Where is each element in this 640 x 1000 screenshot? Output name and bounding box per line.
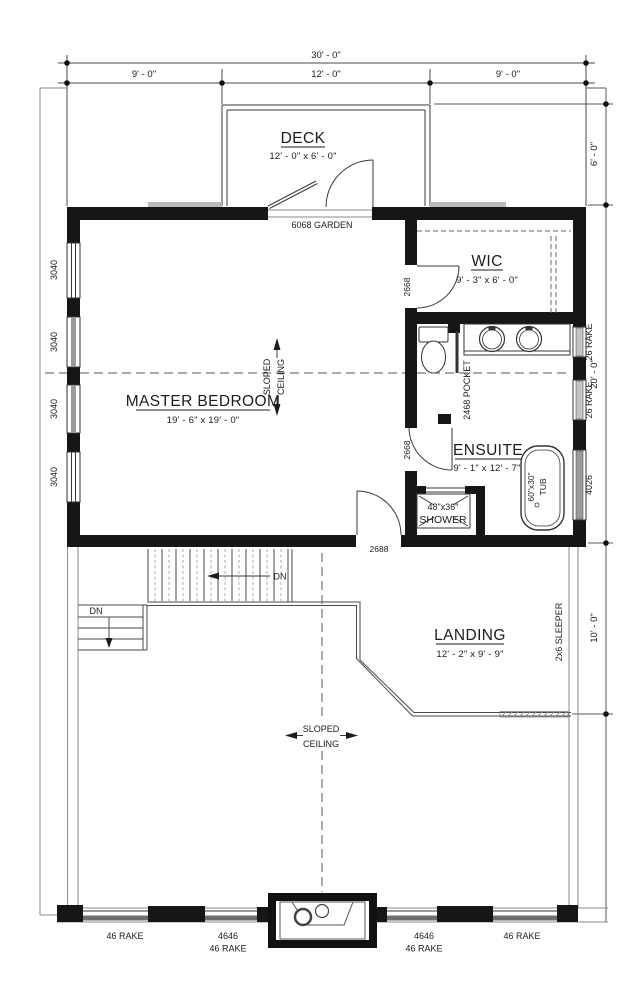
- window-label-3040-3: 3040: [49, 399, 59, 419]
- stairs-dn-label-upper: DN: [274, 572, 287, 582]
- window-label-26rake-1: 26 RAKE: [584, 323, 594, 360]
- landing-dims: 12' - 2" x 9' - 9": [436, 649, 503, 660]
- dim-top-mid: 12' - 0": [311, 69, 340, 80]
- tub-size-label: 60"x30": [526, 472, 536, 501]
- bedroom-door: [357, 491, 401, 535]
- window-label-46rake-right: 46 RAKE: [405, 944, 442, 954]
- garden-door: [268, 160, 373, 217]
- wic-dims: 9' - 3" x 6' - 0": [456, 275, 518, 286]
- deck-label: DECK: [281, 130, 326, 147]
- sleeper-hatch: [500, 712, 568, 718]
- garden-door-label: 6068 GARDEN: [291, 220, 352, 230]
- flue-left: [295, 909, 311, 925]
- tub-label: TUB: [538, 478, 548, 495]
- flue-right: [316, 905, 329, 918]
- window-label-3040-1: 3040: [49, 260, 59, 280]
- ensuite-door: [409, 428, 452, 470]
- bedroom-door-label: 2688: [370, 544, 389, 554]
- window-3040-1: [67, 243, 80, 298]
- window-label-46rake-far-right: 46 RAKE: [503, 931, 540, 941]
- ensuite-label: ENSUITE: [453, 442, 523, 459]
- window-label-46rake-far-left: 46 RAKE: [106, 931, 143, 941]
- dim-top-left: 9' - 0": [132, 69, 156, 80]
- floor-plan: 30' - 0" 9' - 0" 12' - 0" 9' - 0" 6' - 0…: [0, 0, 640, 1000]
- roof-edge-right: [430, 202, 506, 207]
- window-label-26rake-2: 26 RAKE: [584, 381, 594, 418]
- deck-dims: 12' - 0" x 6' - 0": [269, 151, 336, 162]
- dim-right-lower: 10' - 0": [589, 613, 600, 642]
- window-label-4646-left: 4646: [218, 931, 238, 941]
- dim-top-right: 9' - 0": [496, 69, 520, 80]
- window-3040-4: [67, 452, 80, 502]
- master-bedroom-label: MASTER BEDROOM: [126, 393, 281, 410]
- window-label-4026: 4026: [584, 475, 594, 495]
- wic-label: WIC: [471, 253, 502, 270]
- exterior-walls: [67, 207, 586, 547]
- stairs-dn-label-lower: DN: [90, 606, 103, 616]
- landing-railing: [147, 602, 571, 716]
- roof-edge-left: [148, 202, 222, 207]
- ceiling-label-lower: CEILING: [303, 739, 339, 749]
- master-bedroom-dims: 19' - 6" x 19' - 0": [167, 415, 240, 426]
- dim-right-deck: 6' - 0": [589, 142, 600, 166]
- chimney: [272, 897, 373, 944]
- stairs-lower-run: [78, 605, 147, 650]
- wic-door: [417, 266, 459, 308]
- sloped-label-lower: SLOPED: [303, 724, 340, 734]
- wic-door-label: 2668: [402, 277, 412, 296]
- ensuite-door-label: 2668: [402, 440, 412, 459]
- window-label-4646-right: 4646: [414, 931, 434, 941]
- window-label-46rake-left: 46 RAKE: [209, 944, 246, 954]
- pocket-door-label: 2468 POCKET: [462, 360, 472, 420]
- window-3040-2: [67, 317, 80, 367]
- toilet: [419, 327, 448, 373]
- sleeper-label: 2x6 SLEEPER: [554, 602, 564, 661]
- pocket-door-panel: [456, 331, 459, 373]
- shower-size-label: 48"x36": [428, 502, 459, 512]
- stairs-upper-run: [148, 549, 292, 602]
- window-3040-3: [67, 385, 80, 433]
- window-label-3040-2: 3040: [49, 332, 59, 352]
- landing-label: LANDING: [434, 627, 506, 644]
- ensuite-dims: 9' - 1" x 12' - 7": [453, 463, 520, 474]
- shower-label: SHOWER: [419, 514, 467, 526]
- window-label-3040-4: 3040: [49, 467, 59, 487]
- dim-overall-width: 30' - 0": [311, 50, 340, 61]
- ceiling-label-bedroom: CEILING: [276, 359, 286, 395]
- sink-right: [517, 327, 542, 352]
- sink-left: [480, 327, 505, 352]
- vanity: [464, 324, 570, 355]
- sloped-label-bedroom: SLOPED: [262, 358, 272, 395]
